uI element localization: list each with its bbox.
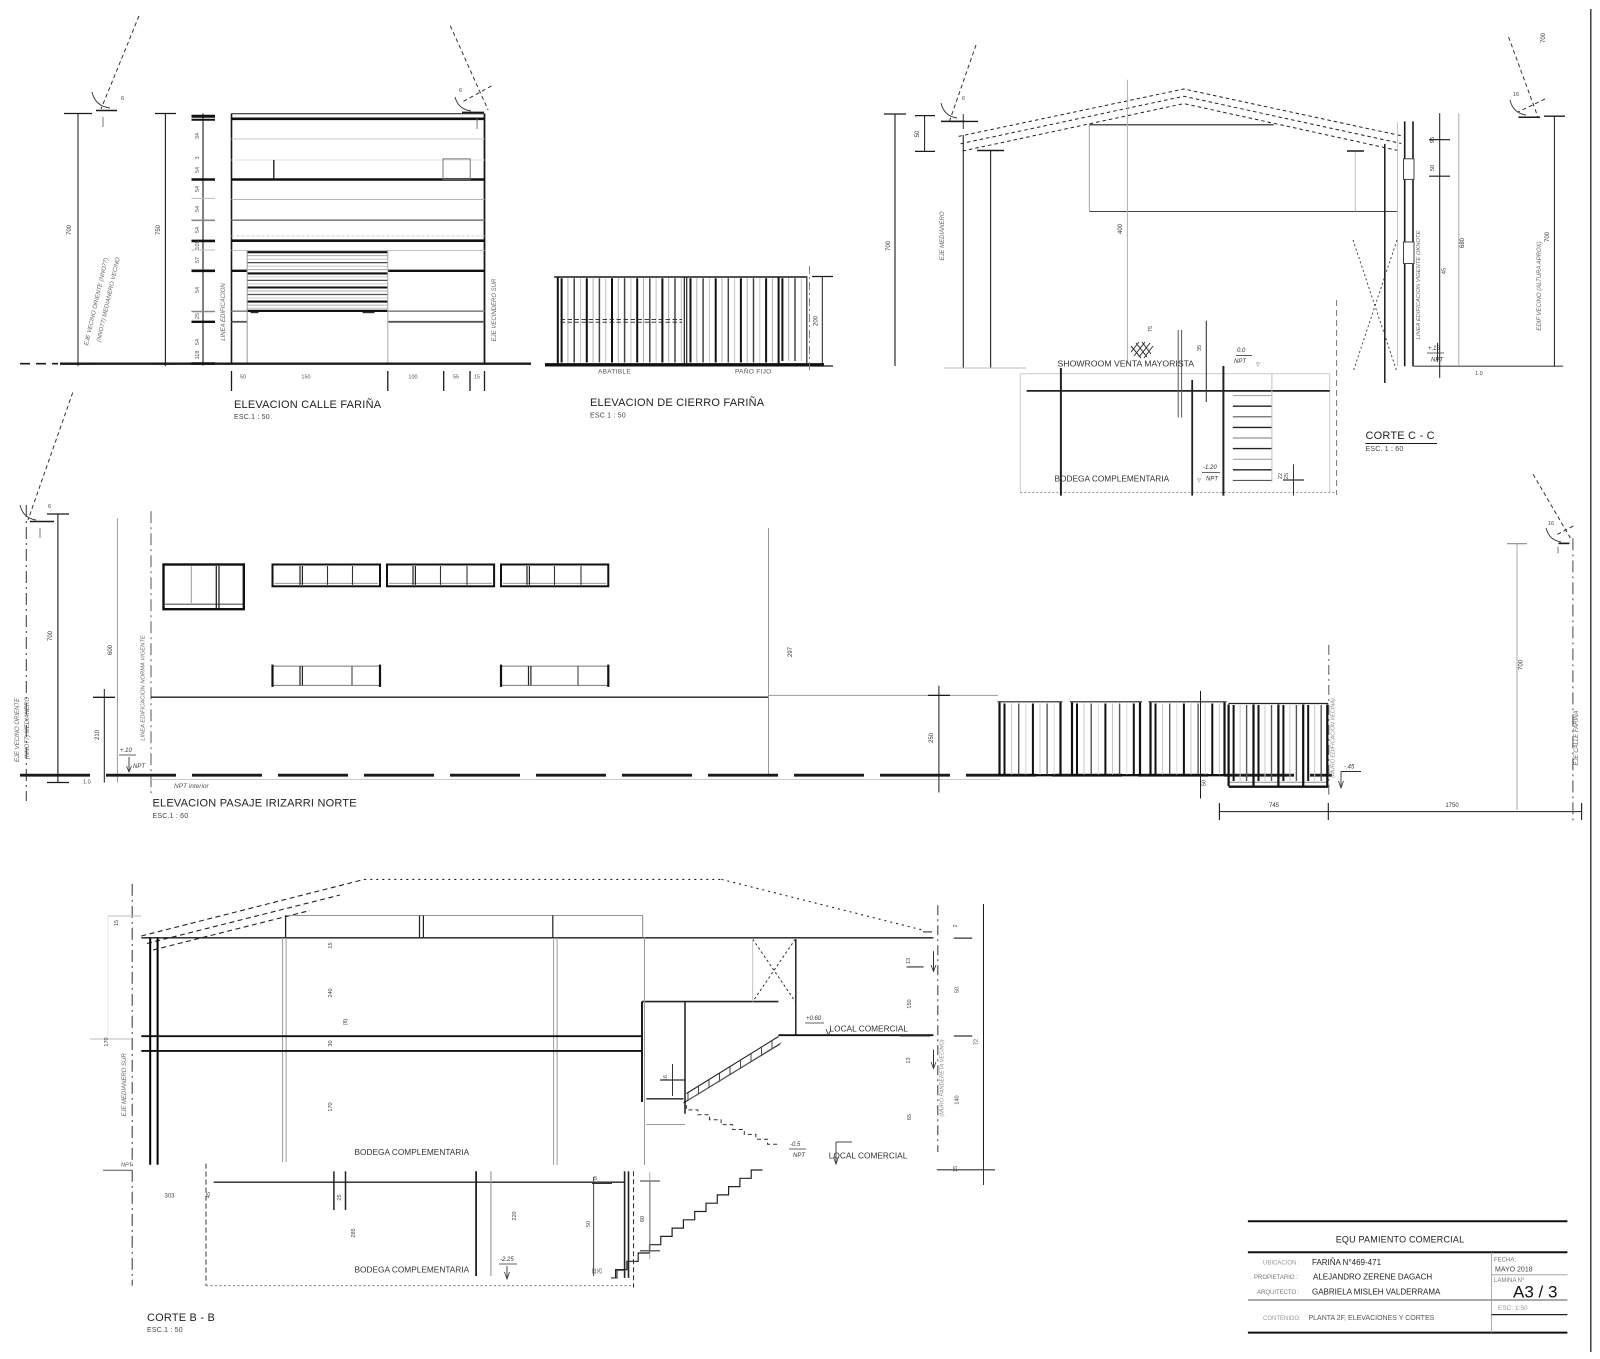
svg-text:EJE VECINO ORIENTE: EJE VECINO ORIENTE (15, 697, 21, 762)
svg-text:50: 50 (915, 130, 921, 137)
svg-text:BODEGA COMPLEMENTARIA: BODEGA COMPLEMENTARIA (355, 1147, 470, 1157)
svg-text:50: 50 (1430, 165, 1436, 171)
svg-text:-2.25: -2.25 (500, 1257, 514, 1263)
svg-text:30: 30 (328, 1040, 334, 1046)
svg-text:700: 700 (886, 240, 892, 251)
svg-text:LINEA EDIFICACION: LINEA EDIFICACION (221, 283, 227, 341)
svg-text:-.45: -.45 (1344, 765, 1355, 771)
svg-text:CORTE C - C: CORTE C - C (1366, 430, 1435, 442)
svg-text:170: 170 (328, 1102, 334, 1111)
svg-text:15: 15 (114, 920, 120, 926)
svg-text:BODEGA COMPLEMENTARIA: BODEGA COMPLEMENTARIA (355, 1265, 470, 1275)
svg-text:210: 210 (95, 729, 101, 740)
svg-text:16: 16 (1513, 92, 1519, 98)
svg-text:50: 50 (1202, 780, 1208, 786)
svg-text:700: 700 (1545, 231, 1551, 242)
svg-text:54: 54 (195, 167, 201, 173)
svg-text:15: 15 (328, 942, 334, 948)
svg-text:GABRIELA MISLEH VALDERRAMA: GABRIELA MISLEH VALDERRAMA (1312, 1288, 1441, 1297)
svg-text:16: 16 (663, 1075, 669, 1081)
svg-text:54: 54 (195, 227, 201, 233)
svg-text:303: 303 (164, 1194, 175, 1200)
svg-text:UBICACION :: UBICACION : (1263, 1261, 1300, 1267)
svg-text:ARQUITECTO :: ARQUITECTO : (1257, 1290, 1300, 1296)
svg-text:ALEJANDRO ZERENE DAGACH: ALEJANDRO ZERENE DAGACH (1313, 1273, 1432, 1282)
svg-text:680: 680 (1460, 237, 1466, 248)
svg-text:EQU PAMIENTO COMERCIAL: EQU PAMIENTO COMERCIAL (1336, 1235, 1465, 1245)
svg-text:34: 34 (195, 133, 201, 139)
svg-text:25: 25 (1284, 473, 1290, 479)
svg-text:SHOWROOM VENTA MAYORISTA: SHOWROOM VENTA MAYORISTA (1058, 359, 1195, 369)
svg-text:(MURO PANDERETA VECINO): (MURO PANDERETA VECINO) (940, 1039, 946, 1116)
svg-text:FECHA:: FECHA: (1494, 1258, 1516, 1264)
svg-text:75: 75 (1148, 326, 1154, 332)
svg-text:1750: 1750 (1445, 803, 1459, 809)
svg-text:ESC: 1:50: ESC: 1:50 (1498, 1305, 1528, 1312)
svg-text:PAÑO FIJO: PAÑO FIJO (735, 367, 772, 376)
svg-text:60: 60 (640, 1216, 646, 1222)
svg-text:ESC.1 : 50: ESC.1 : 50 (147, 1327, 183, 1334)
svg-text:700: 700 (48, 630, 54, 641)
svg-text:57: 57 (195, 257, 201, 263)
svg-text:ABATIBLE: ABATIBLE (598, 369, 631, 376)
svg-text:3: 3 (195, 156, 201, 159)
svg-text:6: 6 (962, 96, 965, 102)
svg-text:6: 6 (48, 504, 51, 510)
svg-text:-1.20: -1.20 (1203, 465, 1217, 471)
svg-text:5: 5 (594, 1176, 597, 1182)
svg-text:2: 2 (953, 924, 959, 927)
svg-text:65: 65 (907, 1114, 913, 1120)
svg-text:ESC. 1 : 60: ESC. 1 : 60 (1366, 446, 1404, 453)
svg-text:+.15: +.15 (1428, 346, 1441, 352)
svg-text:745: 745 (1269, 803, 1280, 809)
svg-text:15: 15 (953, 1166, 959, 1172)
svg-text:16: 16 (1548, 521, 1554, 527)
svg-text:50: 50 (955, 987, 961, 993)
svg-text:700: 700 (1541, 32, 1547, 43)
svg-text:ELEVACION DE CIERRO FARIÑA: ELEVACION DE CIERRO FARIÑA (590, 396, 765, 409)
svg-text:54: 54 (195, 339, 201, 345)
svg-text:PROPIETARIO :: PROPIETARIO : (1254, 1275, 1298, 1281)
svg-text:NPT interior: NPT interior (174, 783, 210, 790)
svg-text:400: 400 (1118, 223, 1124, 234)
svg-text:297: 297 (788, 646, 794, 657)
svg-text:25: 25 (337, 1194, 343, 1200)
svg-text:15: 15 (474, 375, 480, 381)
svg-text:FARIÑA N°469-471: FARIÑA N°469-471 (1312, 1258, 1382, 1267)
svg-text:118: 118 (195, 351, 201, 360)
svg-text:CONTENIDO:: CONTENIDO: (1263, 1316, 1301, 1322)
svg-text:ESC.1 : 50: ESC.1 : 50 (234, 414, 270, 421)
svg-text:700: 700 (67, 224, 73, 235)
svg-text:MAYO 2018: MAYO 2018 (1495, 1267, 1533, 1274)
svg-text:285: 285 (351, 1228, 357, 1237)
svg-text:ELEVACION PASAJE IRIZARRI NORT: ELEVACION PASAJE IRIZARRI NORTE (153, 798, 357, 810)
svg-text:700: 700 (1519, 659, 1525, 670)
svg-text:ELEVACION CALLE FARIÑA: ELEVACION CALLE FARIÑA (234, 398, 382, 411)
svg-text:105: 105 (195, 240, 201, 249)
svg-text:ESC.1 : 60: ESC.1 : 60 (153, 813, 189, 820)
svg-text:50: 50 (240, 375, 246, 381)
svg-text:45: 45 (1442, 268, 1448, 274)
svg-text:54: 54 (195, 206, 201, 212)
svg-text:95: 95 (1430, 137, 1436, 143)
svg-text:25: 25 (195, 313, 201, 319)
svg-text:(MURO EDIFICACION VECINA): (MURO EDIFICACION VECINA) (1331, 698, 1337, 778)
svg-text:LINEA EDIFICACION VIGENTE OKNO: LINEA EDIFICACION VIGENTE OKNOTE (1416, 231, 1422, 340)
svg-text:6: 6 (459, 88, 462, 94)
svg-text:25: 25 (598, 1268, 604, 1274)
svg-text:13: 13 (906, 1057, 912, 1063)
svg-text:100: 100 (408, 375, 417, 381)
svg-text:45: 45 (206, 1192, 212, 1198)
svg-text:▽: ▽ (1197, 478, 1201, 484)
svg-text:NPT: NPT (121, 1163, 133, 1169)
svg-text:13: 13 (906, 958, 912, 964)
svg-text:150: 150 (907, 999, 913, 1008)
svg-text:A3 / 3: A3 / 3 (1513, 1283, 1557, 1302)
svg-text:+.10: +.10 (120, 748, 133, 754)
svg-text:55: 55 (453, 375, 459, 381)
svg-text:54: 54 (195, 287, 201, 293)
svg-text:EJE VECINDERO SUR: EJE VECINDERO SUR (492, 278, 498, 341)
svg-text:EJE MEDIANERO: EJE MEDIANERO (940, 211, 946, 260)
svg-text:1.0: 1.0 (1475, 371, 1483, 377)
svg-text:1.0: 1.0 (83, 780, 91, 786)
svg-text:▽: ▽ (1256, 362, 1260, 368)
svg-text:PLANTA 2F, ELEVACIONES Y CORTE: PLANTA 2F, ELEVACIONES Y CORTES (1309, 1315, 1435, 1322)
svg-text:240: 240 (328, 988, 334, 997)
svg-text:72: 72 (974, 1039, 980, 1045)
svg-text:250: 250 (929, 732, 935, 743)
svg-text:220: 220 (512, 1211, 518, 1220)
svg-text:750: 750 (156, 224, 162, 235)
svg-text:CORTE B - B: CORTE B - B (147, 1312, 215, 1324)
svg-text:140: 140 (955, 1095, 961, 1104)
svg-text:EJE MEDIANERO SUR: EJE MEDIANERO SUR (122, 1053, 128, 1117)
svg-text:LINEA EDIFICACION NORMA VIGENT: LINEA EDIFICACION NORMA VIGENTE (141, 635, 147, 741)
svg-text:200: 200 (814, 315, 820, 326)
svg-text:LOCAL COMERCIAL: LOCAL COMERCIAL (830, 1024, 909, 1034)
svg-text:NPT: NPT (1206, 477, 1219, 483)
svg-text:50: 50 (586, 1221, 592, 1227)
svg-text:(NNO77) MEDIANERO: (NNO77) MEDIANERO (25, 697, 31, 759)
svg-text:170: 170 (104, 1037, 110, 1046)
svg-text:NPT: NPT (793, 1153, 806, 1159)
svg-text:54: 54 (195, 186, 201, 192)
svg-text:EDIF VECINO (ALTURA APROX): EDIF VECINO (ALTURA APROX) (1537, 241, 1543, 330)
svg-text:(8): (8) (343, 1018, 349, 1025)
svg-text:35: 35 (1197, 345, 1203, 351)
svg-text:+0.60: +0.60 (806, 1016, 822, 1022)
svg-text:600: 600 (108, 644, 114, 655)
svg-text:NPT: NPT (133, 764, 146, 770)
svg-text:BODEGA COMPLEMENTARIA: BODEGA COMPLEMENTARIA (1055, 474, 1170, 484)
svg-text:EJE CALLE FARIÑA: EJE CALLE FARIÑA (1573, 711, 1580, 766)
svg-text:6: 6 (121, 96, 124, 102)
svg-text:ESC 1 : 50: ESC 1 : 50 (590, 413, 626, 420)
svg-text:LOCAL COMERCIAL: LOCAL COMERCIAL (829, 1151, 908, 1161)
svg-text:NPT: NPT (1234, 359, 1247, 365)
svg-text:150: 150 (301, 375, 310, 381)
svg-text:0.0: 0.0 (1237, 348, 1246, 354)
svg-text:-0.5: -0.5 (790, 1142, 801, 1148)
